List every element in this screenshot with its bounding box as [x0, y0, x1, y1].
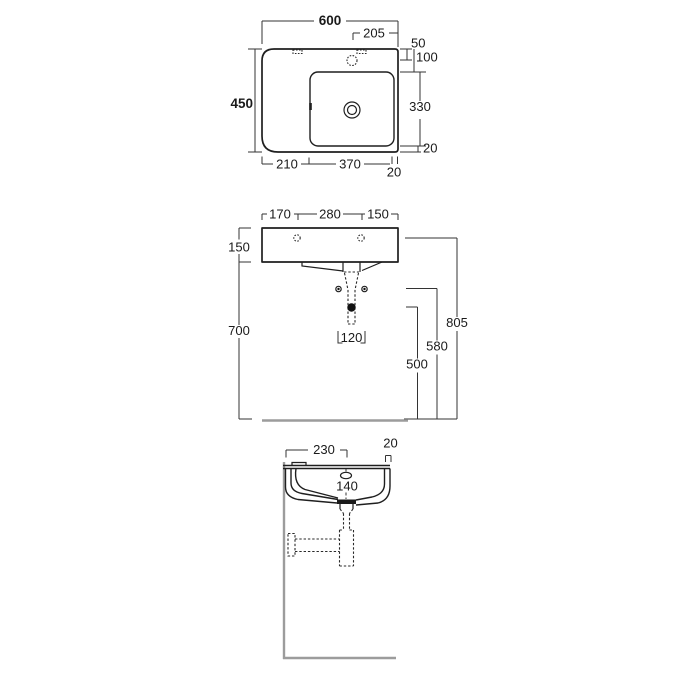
- fixing-slot-left-icon: [293, 50, 302, 54]
- dim-bowl-inner-depth: 140: [336, 479, 358, 494]
- dim-bowl-front-gap: 20: [423, 141, 437, 156]
- bowl-interior-right: [356, 469, 385, 501]
- waste-pipe-to-wall: [295, 539, 340, 552]
- dim-line-front-rim: [386, 456, 392, 463]
- technical-drawing-page: 600 205 450 50 100 330 20 210 370 20: [0, 0, 700, 700]
- trap-body: [340, 530, 354, 566]
- dim-bowl-from-back: 100: [416, 50, 438, 65]
- dim-line-bolt-height: [406, 289, 437, 420]
- dim-underside-height: 700: [228, 323, 250, 338]
- fixing-slot-right-icon: [357, 50, 366, 54]
- top-view: 600 205 450 50 100 330 20 210 370 20: [230, 13, 437, 180]
- rim-section-lines: [283, 466, 390, 469]
- drain-fitting-legs: [340, 504, 353, 509]
- basin-rim-outline: [262, 49, 398, 152]
- bolt-right-center-icon: [363, 288, 365, 290]
- dim-line-bowl-front-gap: [400, 146, 421, 152]
- basin-underside-profile: [302, 262, 382, 272]
- dim-bowl-depth: 330: [409, 99, 431, 114]
- wall-outlet-flange: [288, 534, 295, 557]
- washbasin-dimension-drawing: 600 205 450 50 100 330 20 210 370 20: [0, 0, 700, 700]
- dim-fixing-height: 805: [446, 315, 468, 330]
- dim-outlet-height: 500: [406, 357, 428, 372]
- drain-inner-icon: [348, 106, 357, 115]
- side-view: 230 20 140: [283, 436, 398, 660]
- dim-bowl-width: 370: [339, 157, 361, 172]
- dim-line-tap-from-back: [400, 49, 412, 60]
- waste-pipe-front: [345, 273, 359, 324]
- basin-front-outline: [262, 228, 398, 262]
- front-view: 170 280 150 120 150 700 805 580 500: [228, 207, 468, 421]
- dim-overall-depth: 450: [230, 96, 253, 111]
- dim-fixing-to-right: 150: [367, 207, 389, 222]
- drain-outlet-icon: [347, 303, 355, 311]
- trap-tailpipe: [340, 509, 353, 530]
- tap-hole-icon: [347, 56, 357, 66]
- dim-front-rim-width: 20: [383, 436, 397, 451]
- dim-line-underside-height: [239, 262, 252, 419]
- dim-overall-width: 600: [319, 13, 342, 28]
- fixing-hole-right-icon: [358, 235, 364, 241]
- drain-outer-icon: [344, 102, 360, 118]
- dim-bolt-spacing: 120: [341, 330, 363, 345]
- dim-wall-to-drain: 230: [313, 442, 335, 457]
- fixing-hole-left-icon: [294, 235, 300, 241]
- dim-tap-offset: 205: [363, 26, 385, 41]
- dim-left-to-fixing: 170: [269, 207, 291, 222]
- dim-fixing-spacing: 280: [319, 207, 341, 222]
- basin-bowl-outline: [310, 72, 394, 146]
- dim-bowl-right-gap: 20: [387, 165, 401, 180]
- dim-ledge-width: 210: [276, 157, 298, 172]
- bolt-left-center-icon: [337, 288, 339, 290]
- drain-fitting-icon: [337, 500, 356, 505]
- dim-tap-from-back: 50: [411, 36, 425, 51]
- dim-bolt-height: 580: [426, 339, 448, 354]
- dim-basin-height: 150: [228, 240, 250, 255]
